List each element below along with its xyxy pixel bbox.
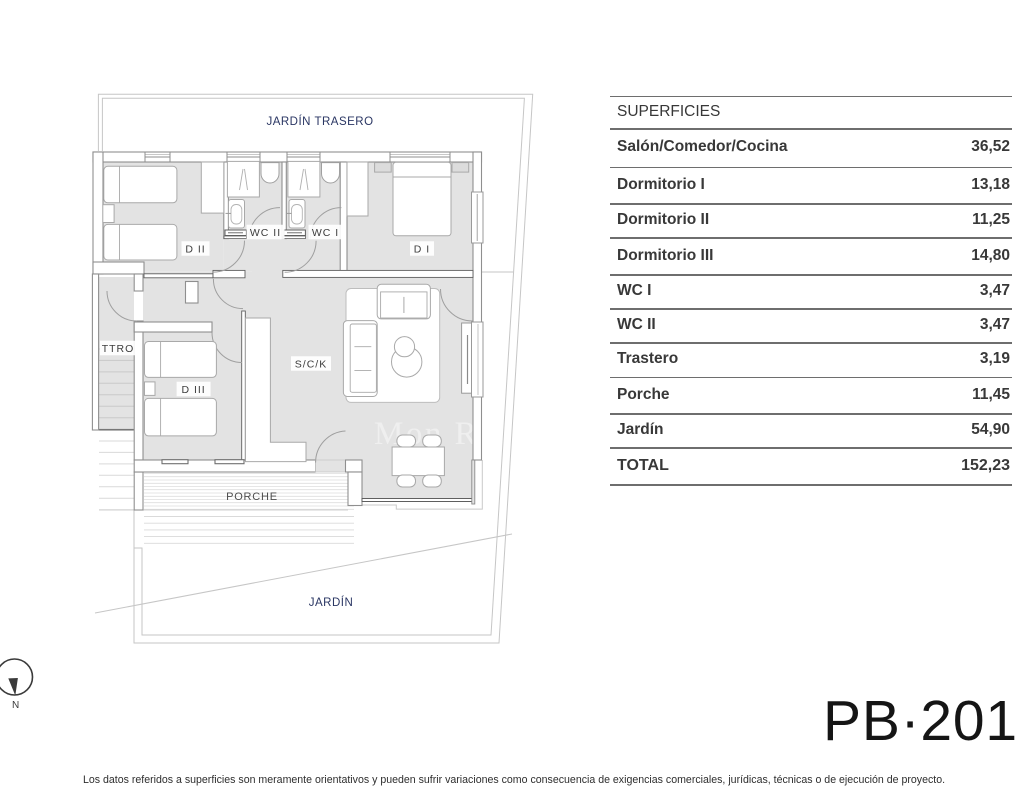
svg-text:TTRO: TTRO — [102, 343, 135, 355]
svg-text:N: N — [12, 700, 19, 711]
svg-text:D III: D III — [181, 384, 205, 396]
svg-text:WC I: WC I — [312, 227, 339, 239]
svg-text:S/C/K: S/C/K — [295, 358, 327, 370]
svg-text:D I: D I — [414, 243, 430, 255]
svg-text:D II: D II — [185, 243, 205, 255]
svg-text:WC II: WC II — [250, 227, 281, 239]
